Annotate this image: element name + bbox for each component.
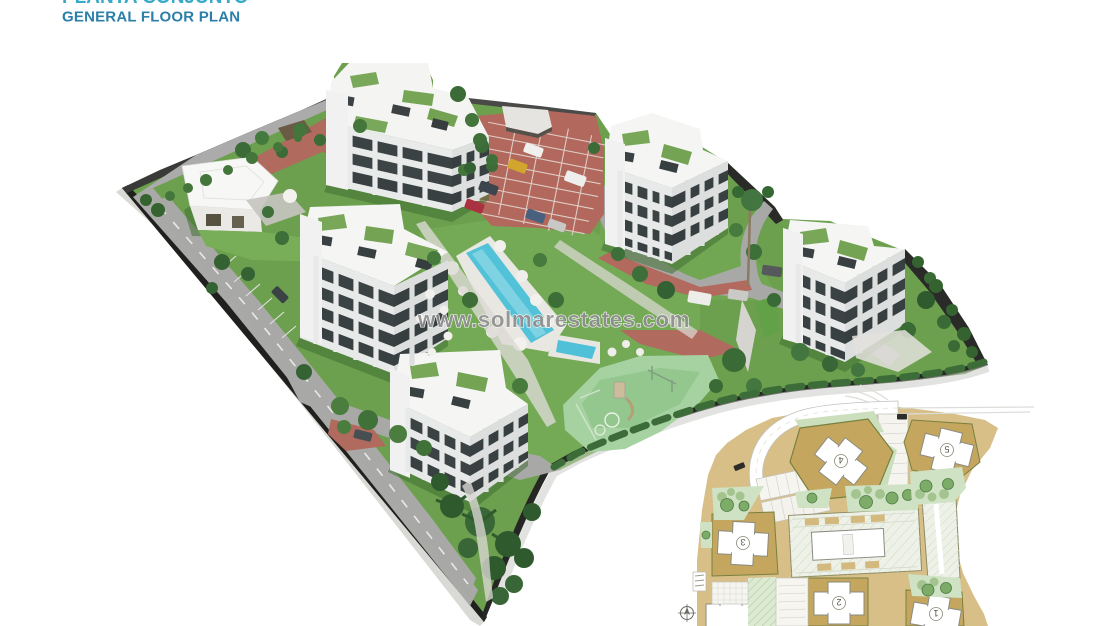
svg-text:GENERAL FLOOR PLAN: GENERAL FLOOR PLAN (62, 9, 240, 26)
svg-text:4: 4 (838, 455, 843, 465)
svg-text:3: 3 (740, 537, 745, 547)
svg-text:PLANTA CONJUNTO: PLANTA CONJUNTO (62, 0, 248, 8)
svg-text:1: 1 (933, 608, 938, 618)
svg-text:www.solmarestates.com: www.solmarestates.com (417, 307, 690, 332)
svg-text:2: 2 (836, 597, 841, 607)
svg-text:5: 5 (944, 444, 949, 454)
